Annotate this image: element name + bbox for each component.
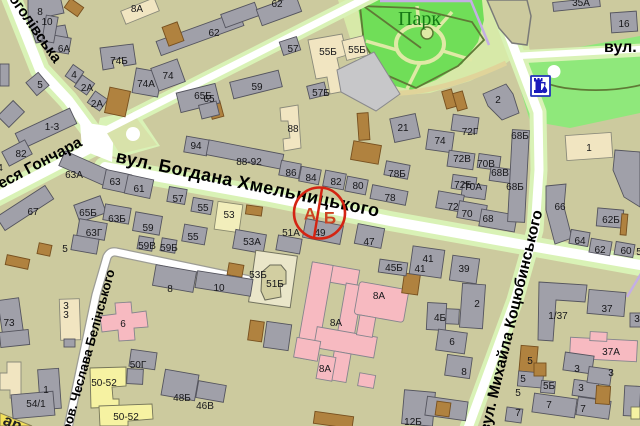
svg-text:72В: 72В	[453, 154, 471, 165]
svg-text:5: 5	[520, 374, 526, 385]
svg-text:4: 4	[71, 70, 77, 81]
svg-text:84: 84	[305, 173, 317, 184]
svg-text:59: 59	[251, 82, 263, 93]
svg-text:45Б: 45Б	[385, 263, 403, 274]
svg-text:54/1: 54/1	[26, 399, 46, 410]
svg-text:74А: 74А	[137, 79, 155, 90]
svg-text:53А: 53А	[243, 237, 261, 248]
svg-text:70: 70	[461, 209, 473, 220]
svg-text:5: 5	[636, 247, 640, 258]
svg-text:62: 62	[271, 0, 283, 10]
svg-text:78: 78	[384, 193, 396, 204]
svg-text:74Б: 74Б	[110, 56, 128, 67]
svg-text:57: 57	[172, 194, 184, 205]
svg-text:62: 62	[208, 28, 220, 39]
svg-text:72Г: 72Г	[462, 127, 479, 138]
svg-text:5: 5	[62, 244, 68, 255]
svg-text:51Б: 51Б	[266, 279, 284, 290]
svg-text:70А: 70А	[464, 182, 482, 193]
svg-text:5Б: 5Б	[543, 381, 556, 392]
svg-text:72: 72	[447, 202, 459, 213]
svg-text:2: 2	[495, 95, 501, 106]
svg-text:50-52: 50-52	[91, 378, 117, 389]
svg-text:94: 94	[190, 141, 202, 152]
svg-text:4Б: 4Б	[434, 313, 447, 324]
svg-text:8: 8	[167, 284, 173, 295]
svg-text:60: 60	[620, 246, 632, 257]
svg-text:5: 5	[527, 356, 533, 367]
svg-text:6: 6	[449, 337, 455, 348]
svg-text:6: 6	[120, 319, 126, 330]
svg-text:37А: 37А	[602, 347, 620, 358]
svg-text:55: 55	[187, 232, 199, 243]
svg-text:48Б: 48Б	[173, 393, 191, 404]
svg-text:66: 66	[554, 202, 566, 213]
svg-text:61: 61	[133, 184, 145, 195]
svg-text:12Б: 12Б	[404, 417, 422, 426]
svg-text:55: 55	[197, 203, 209, 214]
svg-text:35А: 35А	[572, 0, 590, 9]
svg-text:1-3: 1-3	[45, 122, 60, 133]
svg-text:46В: 46В	[196, 401, 214, 412]
svg-text:41: 41	[414, 264, 426, 275]
svg-text:3: 3	[578, 383, 584, 394]
svg-text:21: 21	[397, 123, 409, 134]
svg-text:55Б: 55Б	[348, 45, 366, 56]
svg-text:51А: 51А	[282, 228, 300, 239]
svg-text:5: 5	[37, 80, 43, 91]
svg-text:1/37: 1/37	[548, 311, 568, 322]
svg-text:8А: 8А	[373, 291, 386, 302]
svg-text:78Б: 78Б	[388, 169, 406, 180]
svg-text:67: 67	[27, 207, 39, 218]
svg-text:68В: 68В	[491, 168, 509, 179]
svg-text:68: 68	[482, 214, 494, 225]
svg-text:65Б: 65Б	[79, 208, 97, 219]
svg-text:74: 74	[162, 71, 174, 82]
svg-text:А: А	[304, 205, 316, 224]
svg-text:88: 88	[287, 124, 299, 135]
svg-text:47: 47	[363, 237, 375, 248]
svg-text:55Б: 55Б	[319, 47, 337, 58]
svg-text:5: 5	[515, 388, 521, 399]
svg-text:50Г: 50Г	[130, 360, 147, 371]
svg-text:82: 82	[330, 177, 342, 188]
svg-text:59Б: 59Б	[160, 243, 178, 254]
svg-text:82: 82	[15, 149, 27, 160]
svg-text:86: 86	[285, 168, 297, 179]
svg-text:50-52: 50-52	[113, 412, 139, 423]
svg-text:57: 57	[287, 44, 299, 55]
svg-text:10: 10	[213, 283, 225, 294]
svg-text:3: 3	[634, 314, 640, 325]
svg-text:63Г: 63Г	[86, 228, 103, 239]
svg-text:8А: 8А	[131, 4, 144, 15]
svg-text:3: 3	[574, 364, 580, 375]
svg-text:39: 39	[458, 264, 470, 275]
svg-text:68Б: 68Б	[506, 182, 524, 193]
svg-text:62Б: 62Б	[602, 215, 620, 226]
svg-text:1: 1	[43, 385, 49, 396]
svg-text:59В: 59В	[138, 241, 156, 252]
svg-text:37: 37	[601, 304, 613, 315]
svg-text:68Б: 68Б	[511, 131, 529, 142]
svg-text:63Б: 63Б	[108, 214, 126, 225]
svg-text:7: 7	[515, 408, 521, 419]
svg-text:7: 7	[580, 404, 586, 415]
svg-text:3: 3	[63, 310, 69, 321]
svg-text:Б: Б	[324, 209, 336, 228]
svg-text:1: 1	[586, 143, 592, 154]
svg-text:63: 63	[109, 177, 121, 188]
svg-text:8А: 8А	[319, 364, 332, 375]
svg-text:Парк: Парк	[398, 8, 441, 30]
svg-text:64: 64	[574, 236, 586, 247]
svg-text:57Б: 57Б	[312, 88, 330, 99]
svg-text:2: 2	[474, 299, 480, 310]
svg-text:73: 73	[3, 318, 15, 329]
svg-text:2А: 2А	[91, 99, 104, 110]
svg-text:80: 80	[352, 181, 364, 192]
svg-text:53: 53	[223, 210, 235, 221]
svg-text:65: 65	[203, 94, 215, 105]
svg-text:2А: 2А	[81, 83, 94, 94]
svg-text:8А: 8А	[330, 318, 343, 329]
svg-text:88-92: 88-92	[236, 157, 262, 168]
svg-text:8: 8	[461, 367, 467, 378]
svg-text:вул.: вул.	[604, 39, 637, 56]
svg-text:16: 16	[618, 19, 630, 30]
svg-text:63А: 63А	[65, 170, 83, 181]
svg-text:3: 3	[608, 368, 614, 379]
svg-text:62: 62	[594, 245, 606, 256]
svg-text:59: 59	[142, 223, 154, 234]
svg-text:74: 74	[434, 136, 446, 147]
svg-text:53Б: 53Б	[249, 270, 267, 281]
svg-text:7: 7	[546, 400, 552, 411]
